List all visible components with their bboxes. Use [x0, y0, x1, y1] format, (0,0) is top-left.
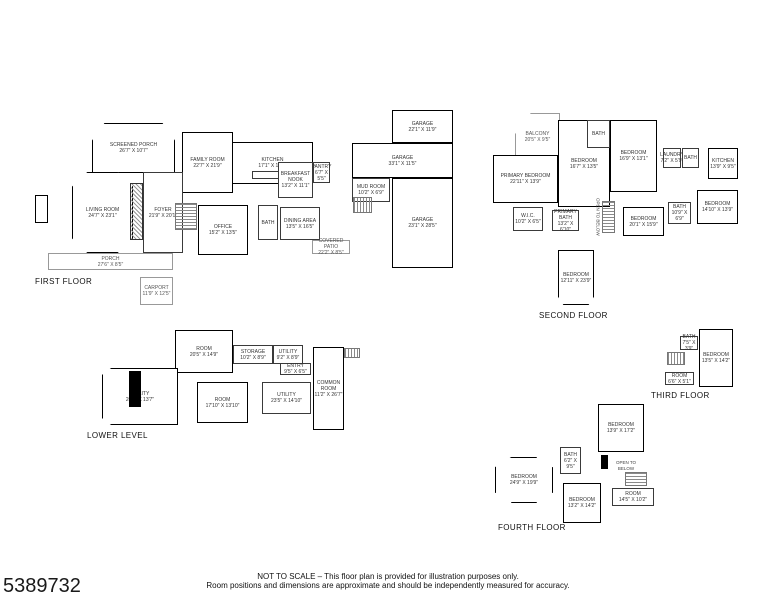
disclaimer: NOT TO SCALE – This floor plan is provid…	[0, 572, 776, 590]
wall-segment	[601, 455, 608, 469]
room-balcony: BALCONY 20'5" X 9'5"	[515, 113, 560, 160]
room-bedroom: BEDROOM 13'5" X 14'2"	[699, 329, 733, 387]
room-wic: W.I.C. 10'2" X 6'5"	[513, 207, 543, 231]
room-utility-3: UTILITY 23'5" X 14'10"	[262, 382, 311, 414]
room-bedroom-3: BEDROOM 13'2" X 14'2"	[563, 483, 601, 523]
kitchen-island	[252, 171, 280, 179]
stairs	[353, 197, 372, 213]
room-bath: BATH 7'5" X 3'9"	[680, 336, 698, 350]
stairs	[344, 348, 360, 358]
room-family-room: FAMILY ROOM 22'7" X 21'9"	[182, 132, 233, 193]
room-breakfast-nook: BREAKFAST NOOK 13'2" X 11'1"	[278, 162, 313, 198]
third-floor-plan: BATH 7'5" X 3'9" BEDROOM 13'5" X 14'2" R…	[655, 325, 735, 397]
room-laundry: LAUNDRY 7'2" X 5'9"	[663, 148, 681, 168]
room-bath-1: BATH	[587, 120, 610, 148]
floor-label-lower: LOWER LEVEL	[87, 431, 148, 440]
room-bedroom-5: BEDROOM 12'11" X 23'9"	[558, 250, 594, 305]
open-to-below-label: OPEN TO BELOW	[593, 198, 602, 236]
room-living-room: LIVING ROOM 24'7" X 23'1"	[72, 172, 133, 253]
room-bedroom-1: BEDROOM 13'9" X 17'2"	[598, 404, 644, 452]
stairs	[667, 352, 685, 365]
room-dining-area: DINING AREA 13'5" X 16'5"	[280, 207, 320, 240]
chimney-wall-segment	[130, 183, 143, 240]
room-kitchen-2: KITCHEN 13'9" X 9'5"	[708, 148, 738, 179]
room-room: ROOM 6'6" X 5'1"	[665, 372, 694, 385]
room-covered-patio: COVERED PATIO 22'2" X 8'5"	[312, 240, 350, 254]
room-garage-2: GARAGE 33'1" X 11'5"	[352, 143, 453, 178]
room-storage: STORAGE 10'2" X 8'9"	[233, 345, 273, 364]
open-to-below-label: OPEN TO BELOW	[608, 460, 644, 472]
disclaimer-line-2: Room positions and dimensions are approx…	[0, 581, 776, 590]
floor-label-first: FIRST FLOOR	[35, 277, 92, 286]
room-bedroom-3: BEDROOM 14'10" X 13'9"	[697, 190, 738, 224]
room-utility-1: UTILITY 9'2" X 8'9"	[273, 345, 303, 364]
stairs	[175, 203, 197, 230]
room-carport: CARPORT 11'9" X 12'5"	[140, 277, 173, 305]
room-entry: ENTRY 9'5" X 6'5"	[280, 363, 311, 375]
bay-window	[35, 195, 48, 223]
room-common-room: COMMON ROOM 11'2" X 26'7"	[313, 347, 344, 430]
room-porch: PORCH 27'6" X 8'5"	[48, 253, 173, 270]
room-office: OFFICE 15'2" X 13'5"	[198, 205, 248, 255]
second-floor-plan: BALCONY 20'5" X 9'5" BEDROOM 16'7" X 13'…	[493, 105, 740, 317]
room-garage-1: GARAGE 22'1" X 11'9"	[392, 110, 453, 143]
room-screened-porch: SCREENED PORCH 26'7" X 10'7"	[92, 123, 175, 173]
room-pantry: PANTRY 6'7" X 5'5"	[313, 162, 330, 183]
floor-label-fourth: FOURTH FLOOR	[498, 523, 566, 532]
room-garage-3: GARAGE 23'1" X 28'5"	[392, 178, 453, 268]
floor-label-third: THIRD FLOOR	[651, 391, 710, 400]
disclaimer-line-1: NOT TO SCALE – This floor plan is provid…	[0, 572, 776, 581]
room-primary-bedroom: PRIMARY BEDROOM 22'11" X 13'9"	[493, 155, 558, 203]
room-room-1: ROOM 20'5" X 14'9"	[175, 330, 233, 373]
floor-label-second: SECOND FLOOR	[539, 311, 608, 320]
room-bedroom-2: BEDROOM 16'9" X 13'1"	[610, 120, 657, 192]
room-room-2: ROOM 17'10" X 13'10"	[197, 382, 248, 423]
room-primary-bath: PRIMARY BATH 13'2" X 6'10"	[552, 210, 579, 231]
wall-segment	[129, 371, 141, 407]
room-bedroom-2: BEDROOM 24'9" X 19'9"	[495, 457, 553, 503]
room-bath-2: BATH	[682, 148, 699, 168]
room-bedroom-4: BEDROOM 20'1" X 15'9"	[623, 207, 664, 236]
room-room: ROOM 14'5" X 10'2"	[612, 488, 654, 506]
first-floor-plan: SCREENED PORCH 26'7" X 10'7" FAMILY ROOM…	[35, 105, 460, 305]
room-bath-3: BATH 10'9" X 6'9"	[668, 202, 691, 224]
room-bath: BATH	[258, 205, 278, 240]
lower-level-plan: ROOM 20'5" X 14'9" STORAGE 10'2" X 8'9" …	[85, 323, 360, 438]
stairs	[625, 472, 647, 486]
room-bath: BATH 6'2" X 9'5"	[560, 447, 581, 474]
fourth-floor-plan: BEDROOM 13'9" X 17'2" BATH 6'2" X 9'5" B…	[490, 400, 680, 532]
stairs	[602, 201, 615, 233]
